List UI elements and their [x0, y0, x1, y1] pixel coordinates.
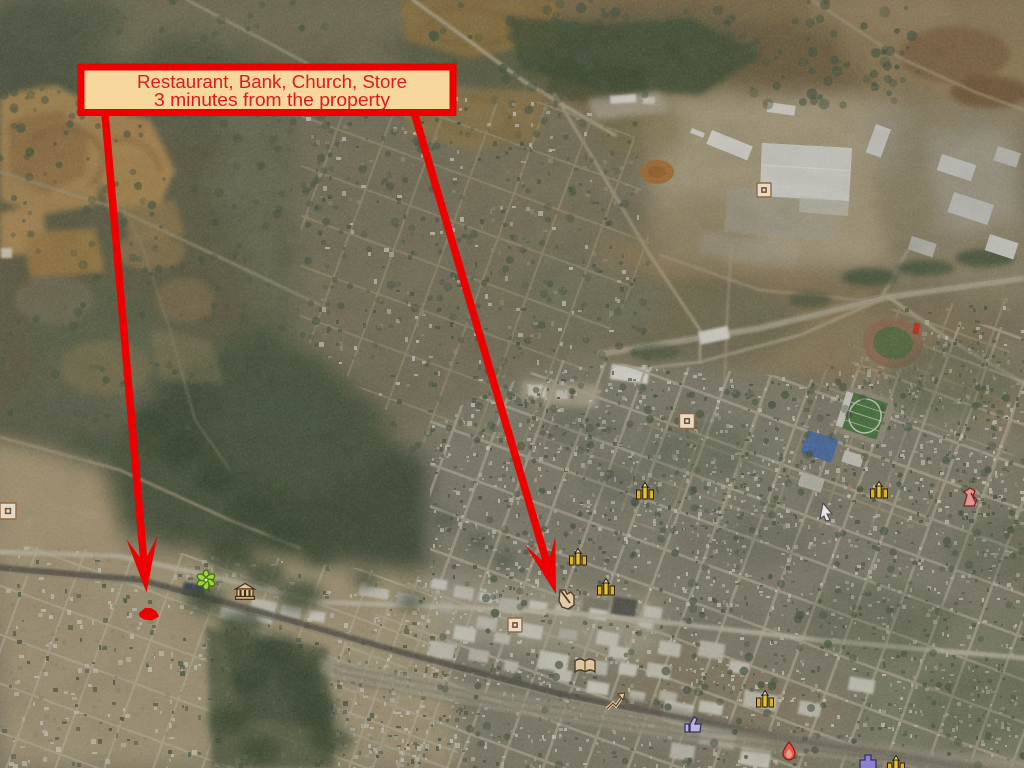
svg-text:3 minutes from the property: 3 minutes from the property — [154, 89, 391, 110]
